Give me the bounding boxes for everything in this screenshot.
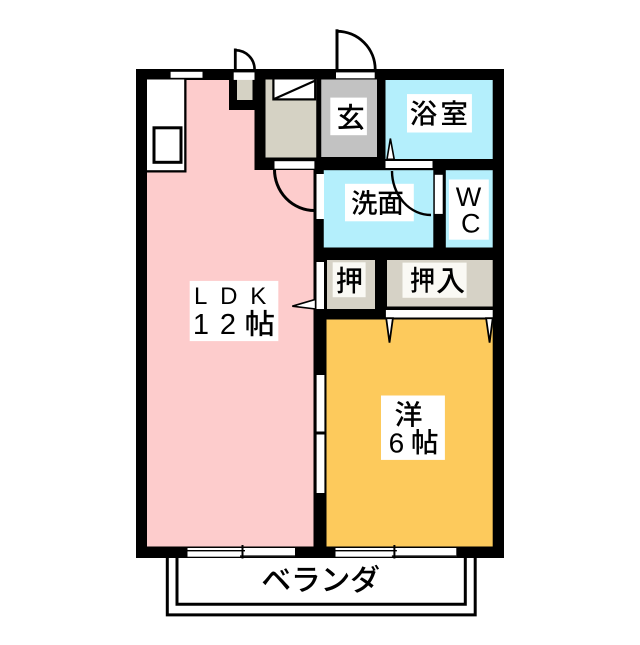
svg-text:LDK: LDK — [194, 283, 279, 310]
svg-text:1: 1 — [193, 309, 209, 341]
svg-text:C: C — [461, 208, 481, 238]
svg-text:2: 2 — [220, 309, 236, 341]
svg-text:6: 6 — [389, 428, 405, 459]
svg-text:W: W — [456, 182, 482, 212]
